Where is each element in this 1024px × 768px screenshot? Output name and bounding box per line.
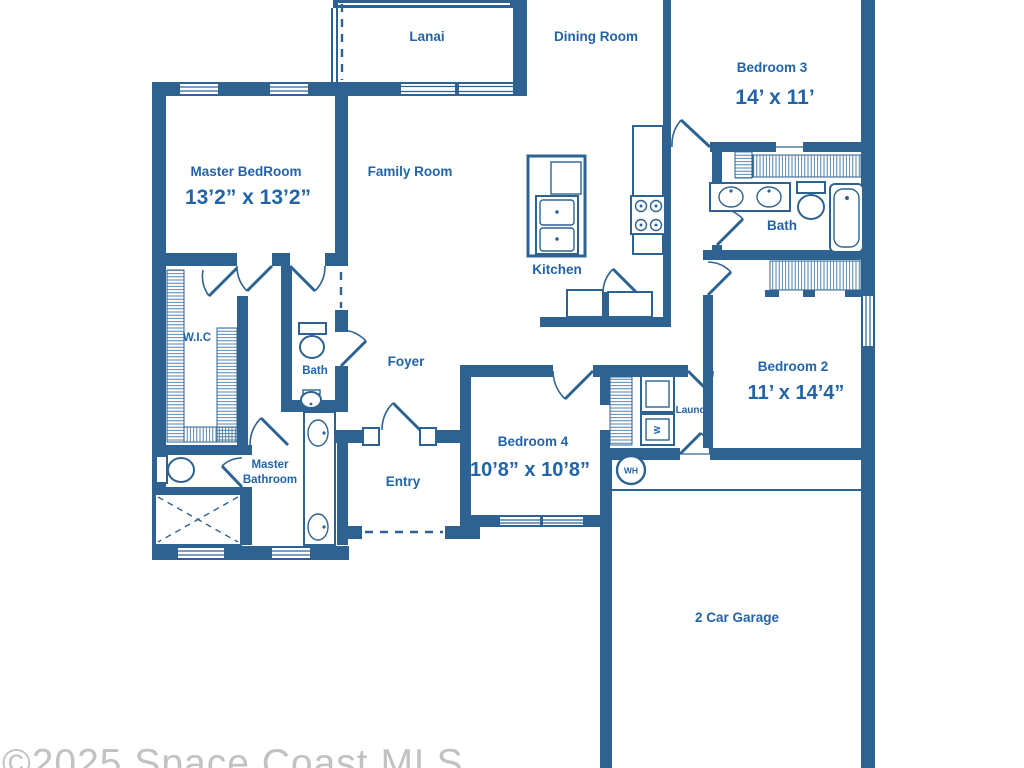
window [500, 517, 540, 525]
sliding-door [401, 84, 513, 94]
door-bedroom3 [672, 120, 710, 147]
label-lanai: Lanai [409, 29, 444, 44]
door-jamb [363, 428, 379, 445]
water-heater-label: WH [624, 466, 638, 476]
floor-plan-drawing: W WH Lanai Dining Room Bedroom 3 14’ x 1… [0, 0, 1024, 768]
sink-icon [301, 390, 321, 408]
door-jamb [420, 428, 436, 445]
window [272, 548, 310, 558]
label-wic: W.I.C [183, 332, 211, 344]
kitchen-cabinet [567, 290, 652, 317]
lanai-screen [338, 3, 510, 5]
label-master-bathroom-2: Bathroom [243, 474, 297, 486]
label-master-bathroom-1: Master [251, 459, 289, 471]
watermark: ©2025 Space Coast MLS [2, 742, 464, 768]
toilet-icon [156, 456, 194, 483]
door-bedroom4 [553, 371, 593, 399]
shower [155, 494, 241, 545]
label-kitchen: Kitchen [532, 262, 582, 277]
label-bath-main: Bath [767, 218, 797, 233]
label-family-room: Family Room [368, 164, 453, 179]
kitchen-island [528, 156, 585, 256]
door-master-bedroom-1 [237, 266, 272, 291]
dims-bedroom3: 14’ x 11’ [735, 86, 814, 109]
washer-icon: W [641, 414, 674, 445]
door-bath-hall [341, 330, 366, 366]
dims-master-bedroom: 13’2” x 13’2” [185, 186, 311, 209]
door-pantry [603, 269, 637, 293]
label-bedroom4: Bedroom 4 [498, 434, 569, 449]
bath-main-vanity [710, 183, 790, 211]
window [270, 84, 308, 94]
floor-plan-page: W WH Lanai Dining Room Bedroom 3 14’ x 1… [0, 0, 1024, 768]
window [180, 84, 218, 94]
door-wic [202, 268, 237, 296]
wic-shelf-left [167, 270, 184, 442]
label-entry: Entry [386, 474, 421, 489]
window [543, 517, 583, 525]
window [863, 296, 873, 346]
dryer-icon [641, 376, 674, 412]
label-bedroom2: Bedroom 2 [758, 359, 829, 374]
label-garage: 2 Car Garage [695, 610, 780, 625]
toilet-icon [797, 182, 825, 219]
bedroom4-closet [610, 377, 632, 445]
door-front [382, 403, 420, 430]
bathtub-icon [830, 184, 863, 252]
washer-label: W [652, 425, 662, 434]
water-heater-icon: WH [617, 456, 645, 484]
linen-closet [735, 150, 752, 178]
door-master-bathroom [250, 418, 288, 445]
stove-icon [631, 196, 665, 234]
wic-shelf-bottom [184, 427, 237, 442]
master-vanity [304, 412, 335, 545]
dims-bedroom4: 10’8” x 10’8” [470, 459, 590, 481]
door-toilet-room [222, 458, 242, 487]
bedroom2-closet [770, 261, 861, 290]
toilet-icon [299, 323, 326, 358]
label-master-bedroom: Master BedRoom [190, 164, 301, 179]
door-bath-main [717, 208, 743, 245]
bedroom3-closet [753, 155, 861, 177]
label-bath-hall: Bath [302, 365, 328, 377]
wic-shelf-right [217, 328, 237, 442]
dims-bedroom2: 11’ x 14’4” [748, 382, 845, 404]
door-bedroom2 [708, 262, 731, 295]
label-bedroom3: Bedroom 3 [737, 60, 808, 75]
label-laundry: Laund. [676, 405, 709, 416]
label-foyer: Foyer [388, 354, 426, 369]
window [776, 142, 803, 152]
window [178, 548, 224, 558]
door-master-bedroom-2 [290, 266, 325, 291]
label-dining-room: Dining Room [554, 29, 638, 44]
